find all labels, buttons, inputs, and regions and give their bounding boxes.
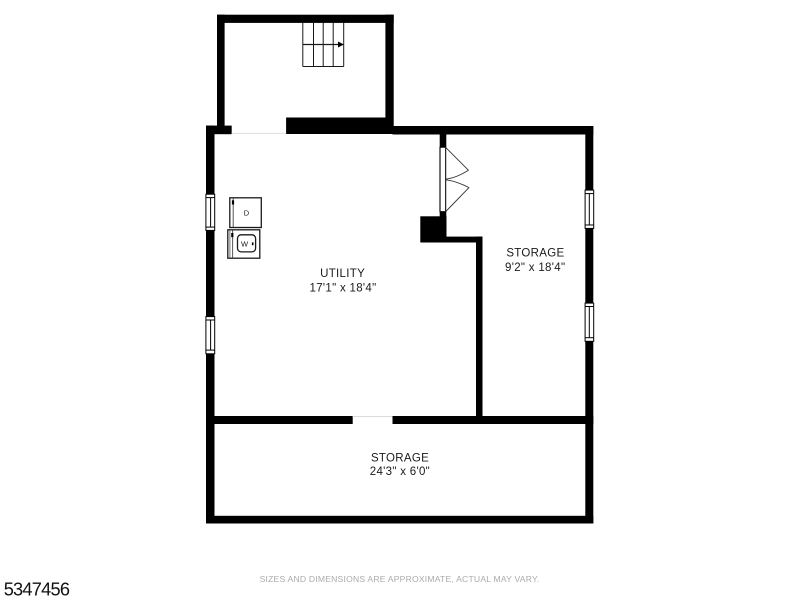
svg-text:STORAGE: STORAGE <box>371 453 429 465</box>
svg-text:STORAGE: STORAGE <box>506 248 564 260</box>
svg-text:D: D <box>244 208 250 217</box>
svg-text:17'1" x 18'4": 17'1" x 18'4" <box>310 282 377 294</box>
svg-text:UTILITY: UTILITY <box>320 268 365 280</box>
svg-text:5347456: 5347456 <box>4 580 70 600</box>
svg-text:W: W <box>241 240 249 249</box>
svg-text:SIZES AND DIMENSIONS ARE APPRO: SIZES AND DIMENSIONS ARE APPROXIMATE, AC… <box>260 574 540 584</box>
svg-text:24'3" x 6'0": 24'3" x 6'0" <box>370 466 430 478</box>
svg-text:9'2" x 18'4": 9'2" x 18'4" <box>505 262 565 274</box>
